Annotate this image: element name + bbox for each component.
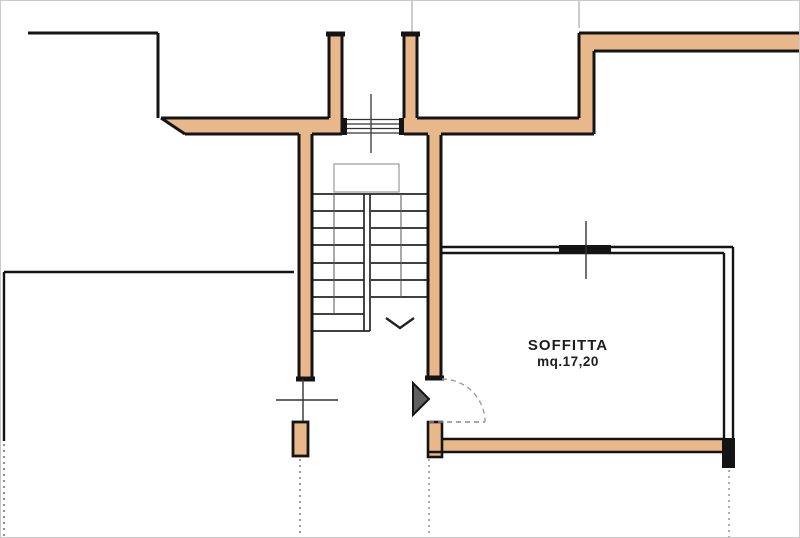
wall-fill-vertical-right: [404, 32, 417, 135]
stair-direction-arrow: [386, 318, 414, 328]
wall-fill-vertical-left: [329, 32, 342, 135]
wall-fill-top-left: [161, 117, 342, 135]
stair-landing-outline: [334, 164, 399, 192]
wall-fill-stairwell-left: [299, 135, 312, 379]
wall-fill-outer-vertical: [579, 32, 594, 135]
wall-lintel-segment: [559, 245, 611, 254]
wall-end-segment: [722, 438, 735, 468]
wall-fill-stairwell-right: [428, 135, 441, 378]
door-swing-arc: [442, 379, 485, 422]
floor-plan-drawing: [1, 1, 800, 538]
floor-plan-canvas: SOFFITTA mq.17,20: [0, 0, 800, 538]
wall-pier-block: [293, 422, 308, 456]
door-leaf: [413, 383, 429, 415]
window-jamb: [399, 118, 404, 135]
wall-fill-top-middle: [417, 117, 579, 135]
window-jamb: [342, 118, 347, 135]
wall-fill-top-right: [594, 32, 800, 51]
